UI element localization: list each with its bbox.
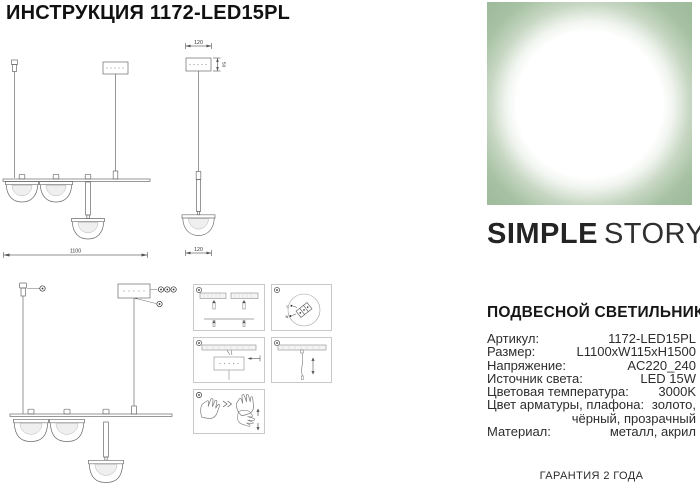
dimension-label-width-top: 120 [194,40,203,46]
spec-row: Артикул:1172-LED15PL [487,332,696,345]
instruction-panel-mounting [193,284,265,331]
callout-marker [158,287,176,292]
brand-logo-primary: SIMPLE [487,218,598,250]
spec-label: Цветовая температура: [487,385,629,398]
up-down-arrow-icon [256,409,259,431]
product-heading: ПОДВЕСНОЙ СВЕТИЛЬНИК [487,304,700,322]
spec-row: Размер:L1100xW115xH1500 [487,345,696,358]
spec-row: Материал:металл, акрил [487,425,696,438]
wiring-neutral-label: N [286,314,289,319]
dimension-label-length: 1100 [70,249,81,255]
cable-connector [12,60,18,72]
brand-logo: SIMPLESTORY [487,218,693,251]
spec-row: Цветовая температура:3000K [487,385,696,398]
anchor-screw-icon [212,300,246,309]
height-adjust-arrow-icon [311,358,314,375]
instruction-panel-canopy [193,337,265,383]
callout-marker [40,286,45,291]
side-view-drawing: 120 50 [182,40,227,256]
instruction-panel-adjust-cable [271,337,332,383]
dimension-label-width-bottom: 120 [194,247,203,253]
instruction-panel-wiring: L N [271,284,332,331]
spec-row: Цвет арматуры, плафона:золото, чёрный, п… [487,398,696,425]
spec-value: металл, акрил [610,424,696,439]
technical-drawings: 1100 120 [0,30,340,489]
spec-label: Размер: [487,345,535,358]
step-number-marker [196,340,201,345]
step-number-marker [196,392,201,397]
product-photo [487,2,692,205]
lamp-shade [40,182,73,203]
cable-connector [20,283,27,296]
lamp-shade-side [182,215,215,236]
spec-row: Напряжение:AC220_240 [487,359,696,372]
terminal-block-icon [296,303,312,318]
hand-icon [237,410,255,427]
lamp-shade [72,219,105,240]
spec-label: Материал: [487,425,551,438]
hand-icon [233,392,257,417]
height-dimension: 50 [213,58,227,71]
bracket-screw-icon [212,321,245,327]
lamp-shade [89,460,124,482]
spec-row: Источник света:LED 15W [487,372,696,385]
length-dimension: 1100 [4,249,148,259]
pointer-arrow-icon [248,356,261,362]
spec-label: Напряжение: [487,359,566,372]
width-dimension-top: 120 [186,40,212,49]
instruction-panel-handling [193,389,265,434]
assembly-drawing [10,283,176,483]
spec-label: Источник света: [487,372,583,385]
front-view-drawing: 1100 [3,60,150,258]
bar [10,414,172,416]
bar [3,179,150,181]
canopy [214,357,244,370]
spec-list: Артикул:1172-LED15PL Размер:L1100xW115xH… [487,332,696,438]
lamp-shade [50,419,85,441]
callout-marker [157,301,162,306]
width-dimension-bottom: 120 [186,247,212,256]
dimension-label-height: 50 [221,62,227,68]
step-number-marker [274,287,279,292]
lamp-shade [6,182,39,203]
page-title: ИНСТРУКЦИЯ 1172-LED15PL [6,2,290,25]
canopy-side [186,58,211,71]
lamp-shade [14,419,49,441]
canopy [103,62,128,74]
spec-label: Цвет арматуры, плафона: [487,398,644,411]
warranty-note: ГАРАНТИЯ 2 ГОДА [487,470,696,482]
spec-label: Артикул: [487,332,539,345]
canopy [118,284,150,298]
hand-icon [200,397,221,419]
step-number-marker [196,287,201,292]
brand-logo-secondary: STORY [604,218,700,250]
rotate-arrow-icon [223,401,232,407]
